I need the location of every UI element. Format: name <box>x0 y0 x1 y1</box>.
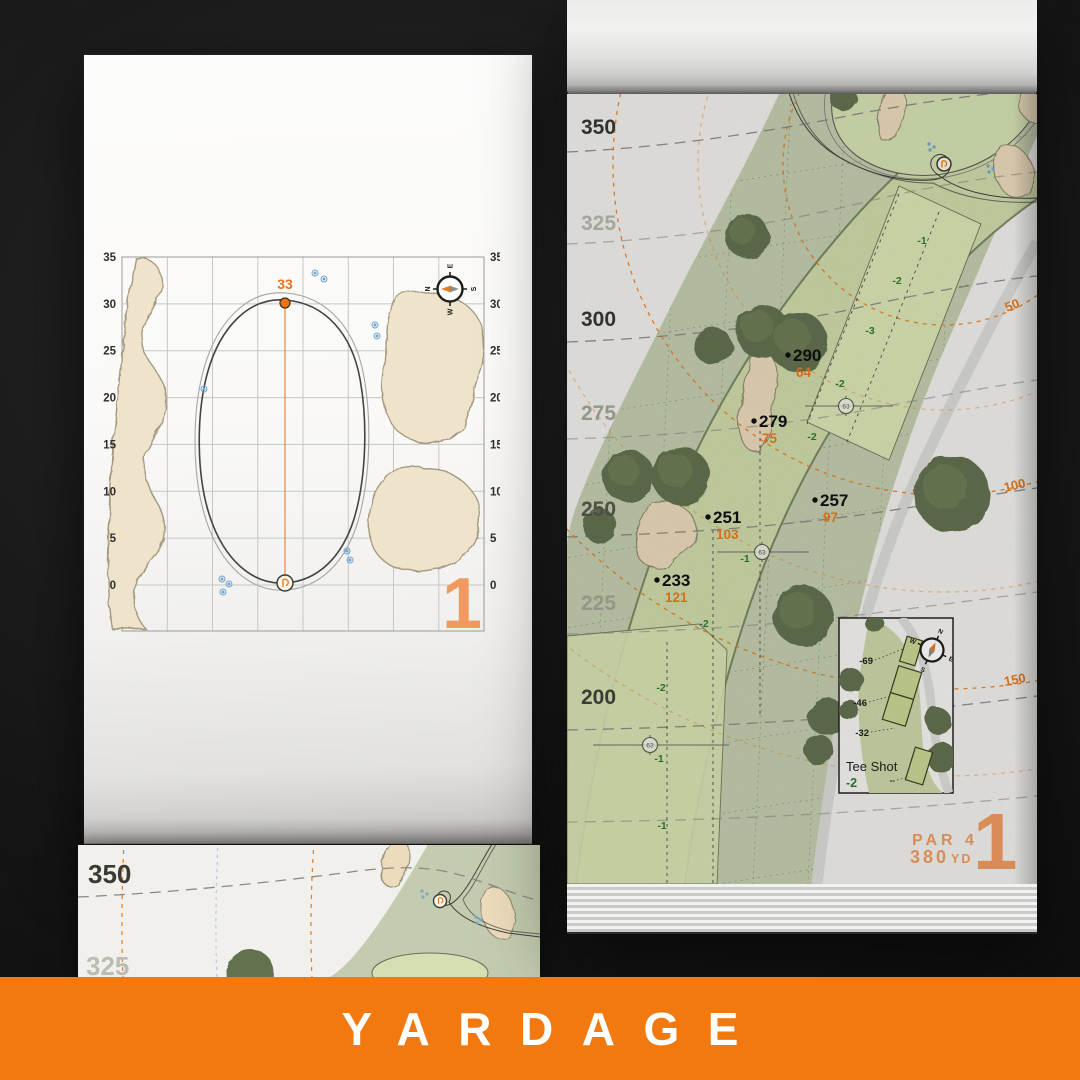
banner-title: YARDAGE <box>313 1002 767 1056</box>
compass-n: N <box>425 286 432 291</box>
flag-marker <box>277 575 293 591</box>
yardage-banner: YARDAGE <box>0 977 1080 1080</box>
svg-text:30: 30 <box>103 299 116 311</box>
svg-text:10: 10 <box>490 486 500 498</box>
svg-text:5: 5 <box>490 533 497 545</box>
hole-map-preview: 350 325 <box>78 845 540 977</box>
svg-text:35: 35 <box>490 252 500 264</box>
sprinkler-dots <box>201 270 380 595</box>
paper-grain <box>567 94 1037 884</box>
hole-map-book: 50 100 150 63 63 <box>565 0 1037 933</box>
pin-dot <box>280 298 290 308</box>
distance-label-350: 350 <box>88 859 131 889</box>
page-stack-edge <box>567 884 1037 934</box>
green-diagram-page: 33 <box>84 55 532 844</box>
svg-text:0: 0 <box>110 580 116 592</box>
svg-text:30: 30 <box>490 299 500 311</box>
svg-text:15: 15 <box>490 439 500 451</box>
compass-e: E <box>448 263 455 268</box>
svg-text:25: 25 <box>490 346 500 358</box>
green-bunkers <box>108 257 484 629</box>
page-edge-shade <box>1013 94 1037 884</box>
green-diagram: 33 <box>98 251 500 651</box>
svg-text:35: 35 <box>103 252 116 264</box>
hole-map: 50 100 150 63 63 <box>567 94 1037 884</box>
putting-green-outline <box>195 293 369 590</box>
svg-text:20: 20 <box>103 393 116 405</box>
flag-marker <box>434 895 447 908</box>
svg-text:10: 10 <box>103 486 116 498</box>
svg-text:15: 15 <box>103 439 116 451</box>
next-page-preview: 350 325 <box>78 845 540 977</box>
pin-distance-label: 33 <box>277 276 293 292</box>
flipped-page-curl <box>567 0 1037 96</box>
yardage-book-mockup: 33 <box>0 0 1080 1080</box>
hole-number: 1 <box>442 564 482 644</box>
svg-text:20: 20 <box>490 393 500 405</box>
svg-text:0: 0 <box>490 580 496 592</box>
hole-map-page: 50 100 150 63 63 <box>567 94 1037 884</box>
compass-s: S <box>471 286 478 291</box>
distance-label-325: 325 <box>86 951 129 977</box>
compass-w: W <box>448 308 455 315</box>
svg-text:25: 25 <box>103 346 116 358</box>
svg-text:5: 5 <box>110 533 117 545</box>
